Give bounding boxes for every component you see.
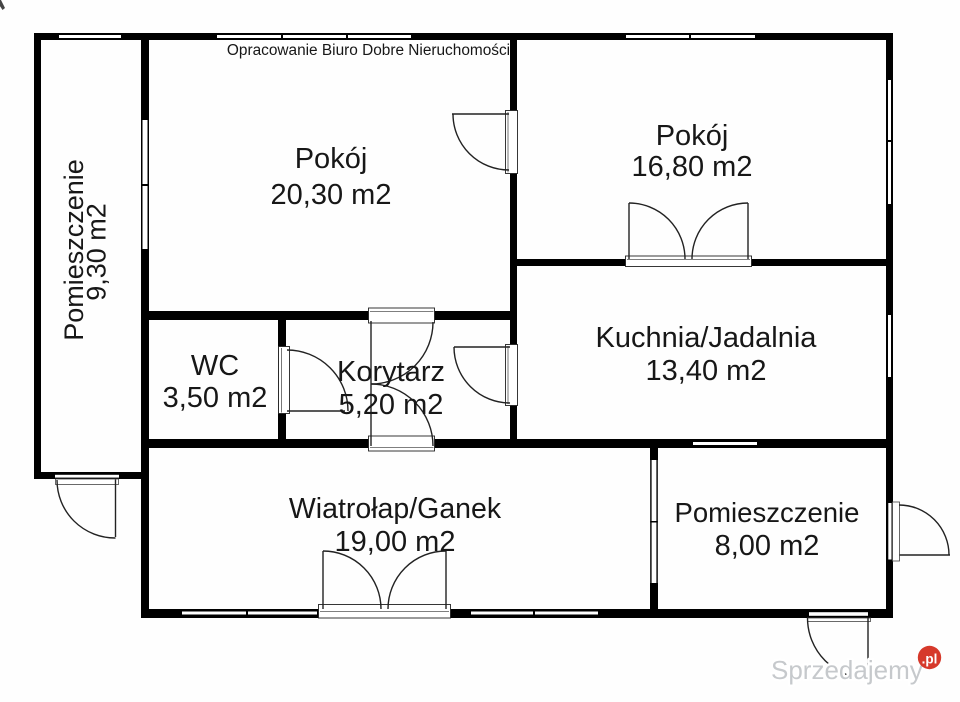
svg-text:5,20 m2: 5,20 m2	[339, 389, 444, 421]
svg-text:WC: WC	[191, 350, 239, 382]
svg-text:9,30 m2: 9,30 m2	[82, 203, 112, 301]
svg-text:3,50 m2: 3,50 m2	[163, 382, 268, 414]
svg-text:Wiatrołap/Ganek: Wiatrołap/Ganek	[289, 493, 502, 525]
svg-text:20,30 m2: 20,30 m2	[271, 179, 392, 211]
svg-text:Pokój: Pokój	[295, 143, 368, 175]
svg-text:19,00 m2: 19,00 m2	[335, 526, 456, 558]
svg-text:Opracowanie Biuro Dobre Nieruc: Opracowanie Biuro Dobre Nieruchomości	[227, 42, 510, 59]
svg-text:Kuchnia/Jadalnia: Kuchnia/Jadalnia	[596, 322, 818, 354]
svg-text:8,00 m2: 8,00 m2	[715, 530, 820, 562]
svg-text:Pokój: Pokój	[656, 120, 729, 152]
svg-text:Pomieszczenie: Pomieszczenie	[675, 497, 860, 528]
svg-text:Korytarz: Korytarz	[337, 356, 445, 388]
svg-text:13,40 m2: 13,40 m2	[646, 355, 767, 387]
svg-text:16,80 m2: 16,80 m2	[632, 151, 753, 183]
svg-text:.pl: .pl	[922, 652, 938, 667]
svg-text:Sprzedajemy: Sprzedajemy	[771, 655, 923, 685]
